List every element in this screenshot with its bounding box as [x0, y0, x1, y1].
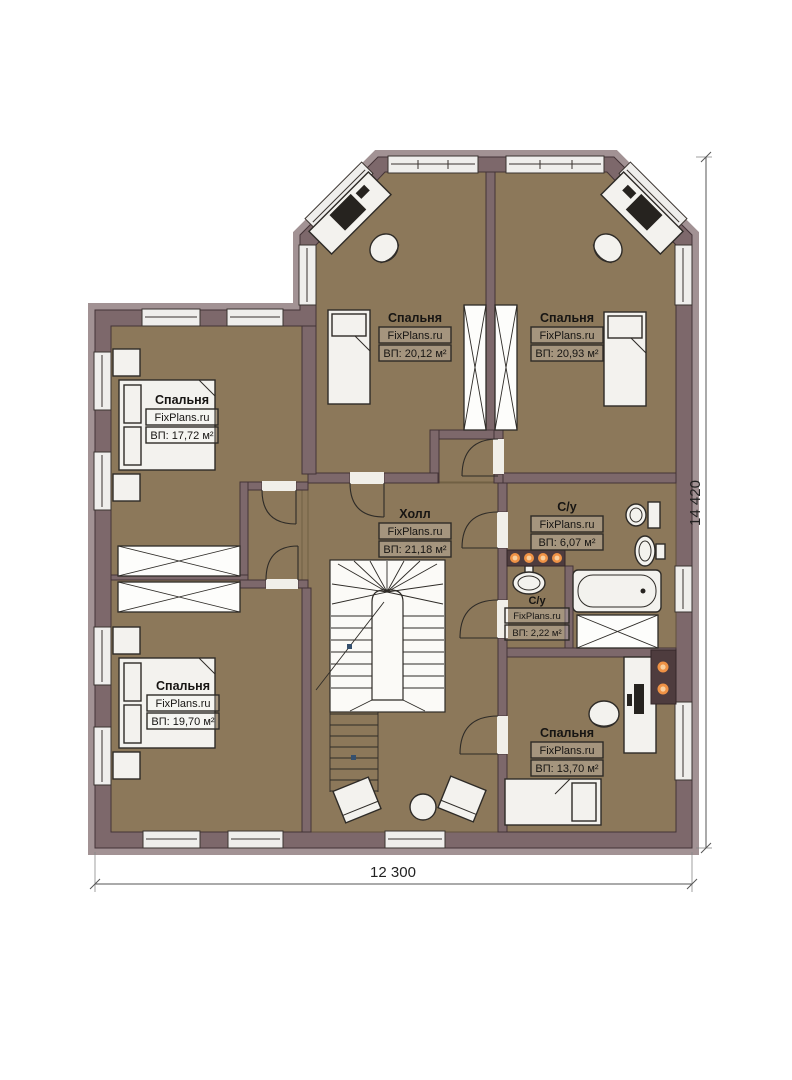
bed-single-top-right [604, 312, 646, 406]
room-name: Спальня [388, 311, 442, 325]
room-label-bedroom-left: Спальня FixPlans.ru ВП: 17,72 м² [146, 393, 218, 443]
wall-top-bedrooms-divider [486, 172, 495, 430]
wardrobe-left-top [118, 546, 240, 576]
window-bottom-hall [385, 831, 445, 848]
floor-plan-page: Спальня FixPlans.ru ВП: 20,12 м² Спальня… [0, 0, 792, 1080]
room-area: ВП: 21,18 м² [383, 544, 447, 556]
room-area: ВП: 19,70 м² [151, 716, 215, 728]
wardrobe-left-bottom [118, 582, 240, 612]
room-name: Холл [399, 507, 430, 521]
room-area: ВП: 20,12 м² [383, 348, 447, 360]
brand-watermark: FixPlans.ru [539, 519, 594, 531]
window-wing-left-side [299, 245, 316, 305]
window-top-left [388, 156, 478, 173]
wall-hall-top-b [384, 473, 438, 483]
wall-vestibule-top-b [296, 482, 308, 490]
wall-alcove-right-b [494, 474, 503, 483]
light-band-wc [507, 550, 565, 566]
brand-watermark: FixPlans.ru [539, 745, 594, 757]
wall-left-rooms-divider-top [302, 326, 316, 474]
wall-hall-right-2 [498, 548, 507, 600]
room-name: Спальня [540, 311, 594, 325]
window-left-wall-1 [94, 352, 111, 410]
window-right-bath [675, 566, 692, 612]
window-bottom-2 [228, 831, 283, 848]
room-label-bedroom-top-right: Спальня FixPlans.ru ВП: 20,93 м² [531, 311, 603, 361]
room-label-bedroom-top-left: Спальня FixPlans.ru ВП: 20,12 м² [379, 311, 451, 361]
brand-watermark: FixPlans.ru [155, 698, 210, 710]
brand-watermark: FixPlans.ru [387, 330, 442, 342]
bathtub [573, 570, 661, 612]
window-top-right [506, 156, 604, 173]
wall-bedroom-tr-bottom [495, 473, 676, 483]
wardrobe-top-left-room [464, 305, 486, 430]
room-name: Спальня [155, 393, 209, 407]
wall-hall-right-3 [498, 638, 507, 716]
window-leftwing-top-2 [227, 309, 283, 326]
shower-tray [577, 615, 658, 648]
window-wing-right-side [675, 245, 692, 305]
wall-hall-right-1 [498, 483, 507, 512]
room-area: ВП: 6,07 м² [538, 537, 595, 549]
wall-lights-bedroom [651, 650, 676, 704]
brand-watermark: FixPlans.ru [154, 412, 209, 424]
window-right-bedroom [675, 702, 692, 780]
brand-watermark: FixPlans.ru [539, 330, 594, 342]
wall-alcove-right-a [494, 430, 503, 439]
stair-void [372, 590, 403, 700]
room-name: Спальня [540, 726, 594, 740]
bed-single-top-left [328, 310, 370, 404]
room-name: Спальня [156, 679, 210, 693]
room-label-bedroom-bottom-left: Спальня FixPlans.ru ВП: 19,70 м² [147, 679, 219, 729]
desk-chair-bottom-right [589, 701, 619, 727]
window-leftwing-top-1 [142, 309, 200, 326]
window-left-wall-4 [94, 727, 111, 785]
room-area: ВП: 2,22 м² [512, 628, 561, 639]
window-left-wall-2 [94, 452, 111, 510]
brand-watermark: FixPlans.ru [387, 526, 442, 538]
round-table [410, 794, 436, 820]
dimension-width-value: 12 300 [370, 864, 416, 881]
room-name: С/у [528, 595, 546, 607]
wall-alcove-top [438, 430, 495, 439]
room-label-bedroom-bottom-right: Спальня FixPlans.ru ВП: 13,70 м² [531, 726, 603, 776]
room-area: ВП: 13,70 м² [535, 763, 599, 775]
wall-vestibule-bottom-a [240, 580, 266, 588]
brand-watermark: FixPlans.ru [513, 611, 561, 622]
room-area: ВП: 20,93 м² [535, 348, 599, 360]
window-left-wall-3 [94, 627, 111, 685]
dimension-height-value: 14 420 [687, 480, 704, 526]
window-bottom-1 [143, 831, 200, 848]
floor-plan-drawing: Спальня FixPlans.ru ВП: 20,12 м² Спальня… [0, 0, 792, 1080]
wall-hall-left-lower [302, 588, 311, 832]
room-area: ВП: 17,72 м² [150, 430, 214, 442]
stair-node [351, 755, 356, 760]
room-name: С/у [557, 500, 577, 514]
dimension-bottom: 12 300 [90, 852, 697, 892]
wall-vestibule-left [240, 482, 248, 588]
wall-vestibule-bottom-b [298, 580, 308, 588]
bed-single-bottom-right [505, 779, 601, 825]
wardrobe-top-right-room [495, 305, 517, 430]
